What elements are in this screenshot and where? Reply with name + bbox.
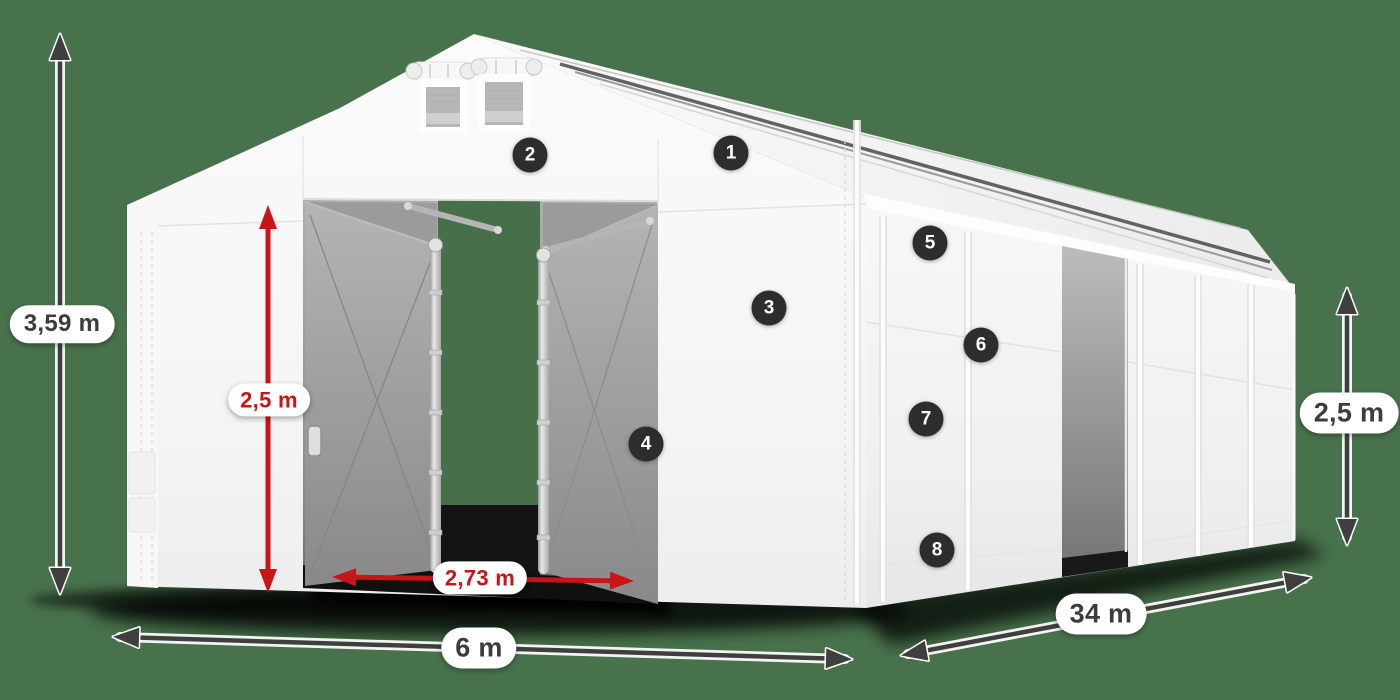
door-handle: [308, 426, 321, 456]
open-far-end: [438, 200, 540, 505]
vent-roll-right: [471, 58, 542, 76]
dimension-label-tent-width: 6 m: [441, 627, 516, 668]
right-door-panel: [543, 205, 658, 604]
entrance-opening: [303, 137, 658, 604]
vent-window-right: [478, 74, 530, 132]
left-door-panel: [305, 202, 437, 586]
dimension-label-tent-length: 34 m: [1056, 593, 1147, 634]
vent-window-left: [419, 79, 467, 133]
tent-illustration: [0, 0, 1400, 700]
frame-pole-right: [537, 248, 551, 574]
feature-badge-8: 8: [920, 533, 955, 568]
dimension-label-entrance-height: 2,5 m: [228, 383, 310, 416]
feature-badge-3: 3: [752, 291, 787, 326]
side-wall-opening: [1062, 246, 1128, 577]
feature-badge-4: 4: [629, 427, 664, 462]
tent-product-image: 3,59 m 2,5 m 2,73 m 6 m 34 m 2,5 m 1 2 3…: [0, 0, 1400, 700]
feature-badge-5: 5: [913, 226, 948, 261]
feature-badge-1: 1: [714, 136, 749, 171]
vent-roll-left: [406, 62, 476, 80]
feature-badge-6: 6: [964, 328, 999, 363]
dimension-label-side-height: 2,5 m: [1300, 392, 1399, 433]
feature-badge-2: 2: [513, 138, 548, 173]
feature-badge-7: 7: [909, 402, 944, 437]
dimension-label-total-height: 3,59 m: [10, 305, 115, 343]
dimension-label-entrance-width: 2,73 m: [433, 561, 527, 594]
frame-pole-left: [429, 238, 443, 573]
